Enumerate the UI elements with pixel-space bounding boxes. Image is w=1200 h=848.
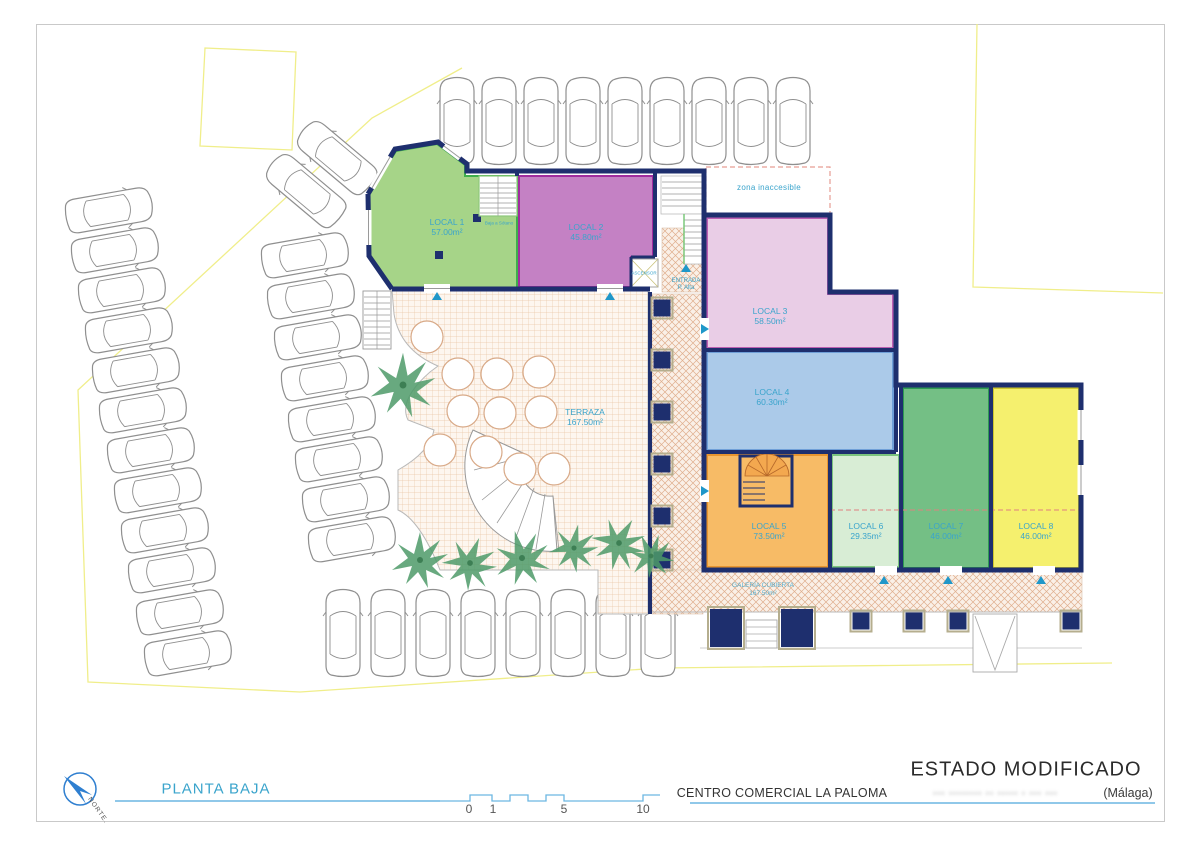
label-local-3: LOCAL 358.50m² <box>753 306 788 326</box>
label-zona-inaccesible: zona inaccesible <box>737 183 801 193</box>
label-baja-sotano: Baja a Sótano <box>485 220 513 225</box>
scale-tick-10: 10 <box>636 802 649 816</box>
label-terraza: TERRAZA167.50m² <box>565 407 605 427</box>
label-local-5: LOCAL 573.50m² <box>752 521 787 541</box>
car-icon <box>563 78 603 165</box>
label-galeria: GALERÍA CUBIERTA167.50m² <box>732 582 794 598</box>
label-local-6: LOCAL 629.35m² <box>849 521 884 541</box>
scale-tick-1: 1 <box>490 802 497 816</box>
floor-title: PLANTA BAJA <box>161 781 270 798</box>
scale-bar <box>440 795 660 801</box>
car-icon <box>689 78 729 165</box>
room-local-3 <box>707 218 893 348</box>
entry-steps <box>746 620 777 648</box>
car-icon <box>548 590 588 677</box>
car-icon <box>647 78 687 165</box>
project-title: CENTRO COMERCIAL LA PALOMA <box>677 786 888 800</box>
car-icon <box>368 590 408 677</box>
label-local-2: LOCAL 245.80m² <box>569 222 604 242</box>
stairs-local1 <box>479 176 517 216</box>
car-icon <box>458 590 498 677</box>
status-title: ESTADO MODIFICADO <box>910 759 1141 782</box>
label-entrada: ENTRADAP. Alta <box>672 278 701 292</box>
scale-tick-5: 5 <box>561 802 568 816</box>
label-local-1: LOCAL 157.00m² <box>430 217 465 237</box>
car-icon <box>521 78 561 165</box>
label-local-7: LOCAL 746.00m² <box>929 521 964 541</box>
stairs-terrace-left <box>363 291 391 349</box>
car-icon <box>731 78 771 165</box>
car-icon <box>323 590 363 677</box>
car-icon <box>773 78 813 165</box>
access-ramp <box>973 614 1017 672</box>
label-local-4: LOCAL 460.30m² <box>755 387 790 407</box>
car-icon <box>479 78 519 165</box>
label-local-8: LOCAL 846.00m² <box>1019 521 1054 541</box>
floorplan-sheet: LOCAL 157.00m² LOCAL 245.80m² LOCAL 358.… <box>0 0 1200 848</box>
spiral-stair-local5 <box>740 454 792 506</box>
car-icon <box>413 590 453 677</box>
car-icon <box>605 78 645 165</box>
label-ascensor: ASCENSOR <box>631 270 656 275</box>
room-local-4 <box>707 352 893 450</box>
palm-icon <box>392 532 448 588</box>
scale-tick-0: 0 <box>466 802 473 816</box>
room-local-6 <box>832 455 899 567</box>
address-obscured: ··· ········ ·· ····· · ··· ··· <box>933 786 1058 800</box>
car-icon <box>503 590 543 677</box>
address-city: (Málaga) <box>1103 786 1152 800</box>
